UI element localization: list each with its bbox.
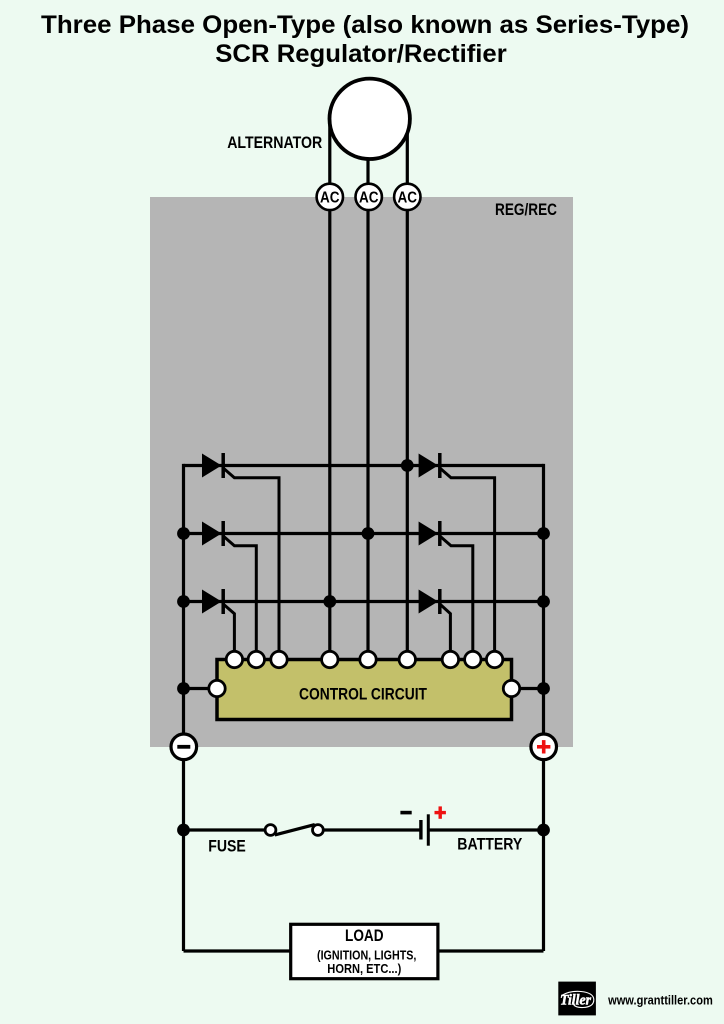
svg-text:AC: AC	[320, 189, 340, 206]
svg-text:HORN, ETC...): HORN, ETC...)	[327, 961, 401, 976]
svg-text:www.granttiller.com: www.granttiller.com	[607, 993, 713, 1008]
svg-text:FUSE: FUSE	[208, 838, 246, 856]
svg-text:REG/REC: REG/REC	[495, 201, 557, 219]
svg-text:CONTROL CIRCUIT: CONTROL CIRCUIT	[299, 685, 427, 704]
svg-text:ALTERNATOR: ALTERNATOR	[227, 134, 322, 152]
svg-text:LOAD: LOAD	[345, 927, 384, 945]
svg-text:AC: AC	[359, 189, 379, 206]
svg-text:BATTERY: BATTERY	[457, 835, 522, 853]
svg-text:AC: AC	[398, 189, 418, 206]
svg-text:Three Phase Open-Type (also kn: Three Phase Open-Type (also known as Ser…	[41, 11, 689, 39]
svg-text:SCR Regulator/Rectifier: SCR Regulator/Rectifier	[215, 40, 507, 68]
